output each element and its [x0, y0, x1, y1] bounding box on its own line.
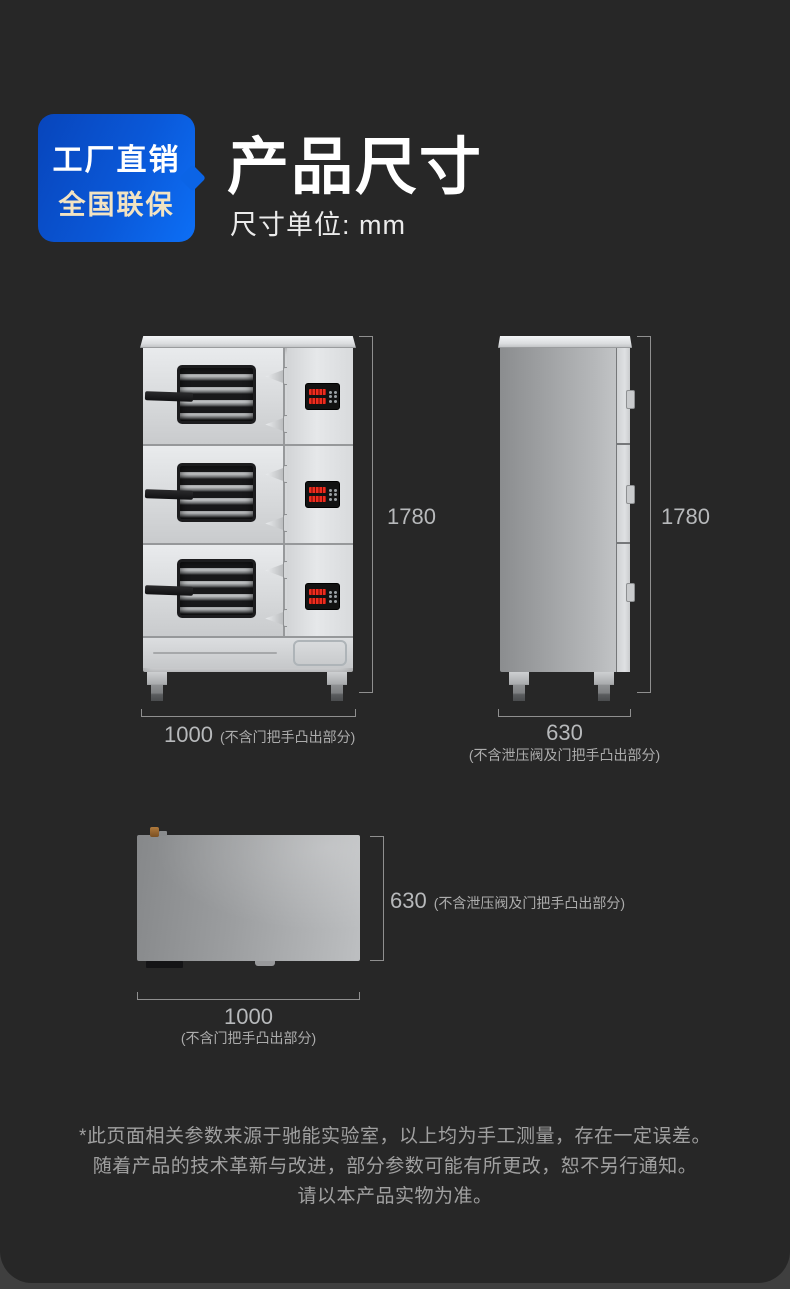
digital-control-panel — [305, 583, 340, 610]
disclaimer-text: *此页面相关参数来源于驰能实验室，以上均为手工测量，存在一定误差。 随着产品的技… — [0, 1122, 790, 1212]
front-width-note: (不含门把手凸出部分) — [220, 727, 355, 747]
base-access-panel — [293, 640, 347, 666]
cabinet-leg — [147, 672, 167, 701]
base-groove — [153, 652, 277, 654]
front-height-bracket — [359, 336, 373, 693]
side-width-note: (不含泄压阀及门把手凸出部分) — [454, 745, 675, 765]
badge-tail-decoration — [179, 165, 206, 192]
led-display-row — [309, 487, 326, 493]
front-width-value: 1000 — [164, 722, 213, 748]
panel-button — [334, 391, 337, 394]
cabinet-top-cap — [498, 336, 632, 348]
panel-button — [329, 591, 332, 594]
front-cabinet-body — [143, 348, 353, 672]
digital-control-panel — [305, 383, 340, 410]
side-view-illustration — [498, 336, 632, 701]
cabinet-top-cap — [140, 336, 356, 348]
top-depth-value: 630 — [390, 888, 427, 914]
door-handle — [145, 585, 193, 596]
disclaimer-line-3: 请以本产品实物为准。 — [0, 1182, 790, 1212]
front-height-label: 1780 — [387, 504, 436, 530]
pressure-relief-valve-icon — [150, 827, 159, 837]
steamer-tier — [143, 348, 353, 446]
led-display-row — [309, 589, 326, 595]
led-display-row — [309, 398, 326, 404]
top-depth-note: (不含泄压阀及门把手凸出部分) — [434, 893, 625, 913]
panel-button — [334, 400, 337, 403]
steamer-tier — [143, 545, 353, 638]
panel-button — [334, 591, 337, 594]
cabinet-leg — [509, 672, 529, 701]
led-display-row — [309, 598, 326, 604]
led-display-row — [309, 389, 326, 395]
cabinet-base — [143, 638, 353, 668]
front-view-illustration — [140, 336, 356, 701]
page-title: 产品尺寸 — [227, 116, 483, 206]
panel-button — [329, 489, 332, 492]
side-width-bracket — [498, 709, 631, 717]
led-display-row — [309, 496, 326, 502]
panel-button — [334, 493, 337, 496]
door-latch-top — [255, 961, 275, 966]
panel-button — [329, 493, 332, 496]
front-width-bracket — [141, 709, 356, 717]
door-handle — [145, 489, 193, 500]
panel-button — [334, 395, 337, 398]
tier-divider — [617, 542, 630, 544]
pressure-relief-valve-icon — [492, 468, 502, 483]
top-depth-label: 630 (不含泄压阀及门把手凸出部分) — [390, 888, 625, 914]
steamer-door — [143, 446, 285, 543]
unit-subtitle: 尺寸单位: mm — [230, 203, 406, 242]
panel-button — [334, 600, 337, 603]
hinge-knob — [626, 485, 635, 504]
badge-line-national-warranty: 全国联保 — [59, 183, 175, 222]
digital-control-panel — [305, 481, 340, 508]
pressure-relief-valve-icon — [492, 565, 502, 580]
panel-button — [329, 391, 332, 394]
top-width-value: 1000 — [137, 1004, 360, 1030]
panel-button — [329, 600, 332, 603]
panel-button — [334, 498, 337, 501]
content-card: 工厂直销 全国联保 产品尺寸 尺寸单位: mm — [0, 0, 790, 1283]
panel-button — [329, 395, 332, 398]
panel-button — [329, 498, 332, 501]
cabinet-leg — [594, 672, 614, 701]
hinge-knob — [626, 583, 635, 602]
steamer-door — [143, 348, 285, 444]
panel-button — [334, 595, 337, 598]
product-dimensions-page: 工厂直销 全国联保 产品尺寸 尺寸单位: mm — [0, 0, 790, 1289]
top-depth-bracket — [370, 836, 384, 961]
cabinet-leg — [327, 672, 347, 701]
tier-divider — [617, 443, 630, 445]
door-handle — [145, 391, 193, 402]
steamer-door — [143, 545, 285, 636]
panel-button — [334, 489, 337, 492]
valve-arm — [159, 831, 167, 836]
top-view-illustration — [137, 835, 360, 961]
top-width-note: (不含门把手凸出部分) — [137, 1028, 360, 1048]
disclaimer-line-2: 随着产品的技术革新与改进，部分参数可能有所更改，恕不另行通知。 — [0, 1152, 790, 1182]
top-width-bracket — [137, 992, 360, 1000]
factory-direct-badge: 工厂直销 全国联保 — [38, 114, 195, 242]
side-cabinet-body — [500, 348, 630, 672]
side-width-value: 630 — [498, 720, 631, 746]
panel-button — [329, 400, 332, 403]
steamer-tier — [143, 446, 353, 545]
disclaimer-line-1: *此页面相关参数来源于驰能实验室，以上均为手工测量，存在一定误差。 — [0, 1122, 790, 1152]
side-height-bracket — [637, 336, 651, 693]
door-handle-top — [146, 961, 183, 968]
side-height-label: 1780 — [661, 504, 710, 530]
pressure-relief-valve-icon — [492, 365, 502, 380]
panel-button — [329, 595, 332, 598]
badge-line-factory-direct: 工厂直销 — [53, 135, 181, 179]
hinge-knob — [626, 390, 635, 409]
front-width-label: 1000 (不含门把手凸出部分) — [164, 722, 355, 748]
